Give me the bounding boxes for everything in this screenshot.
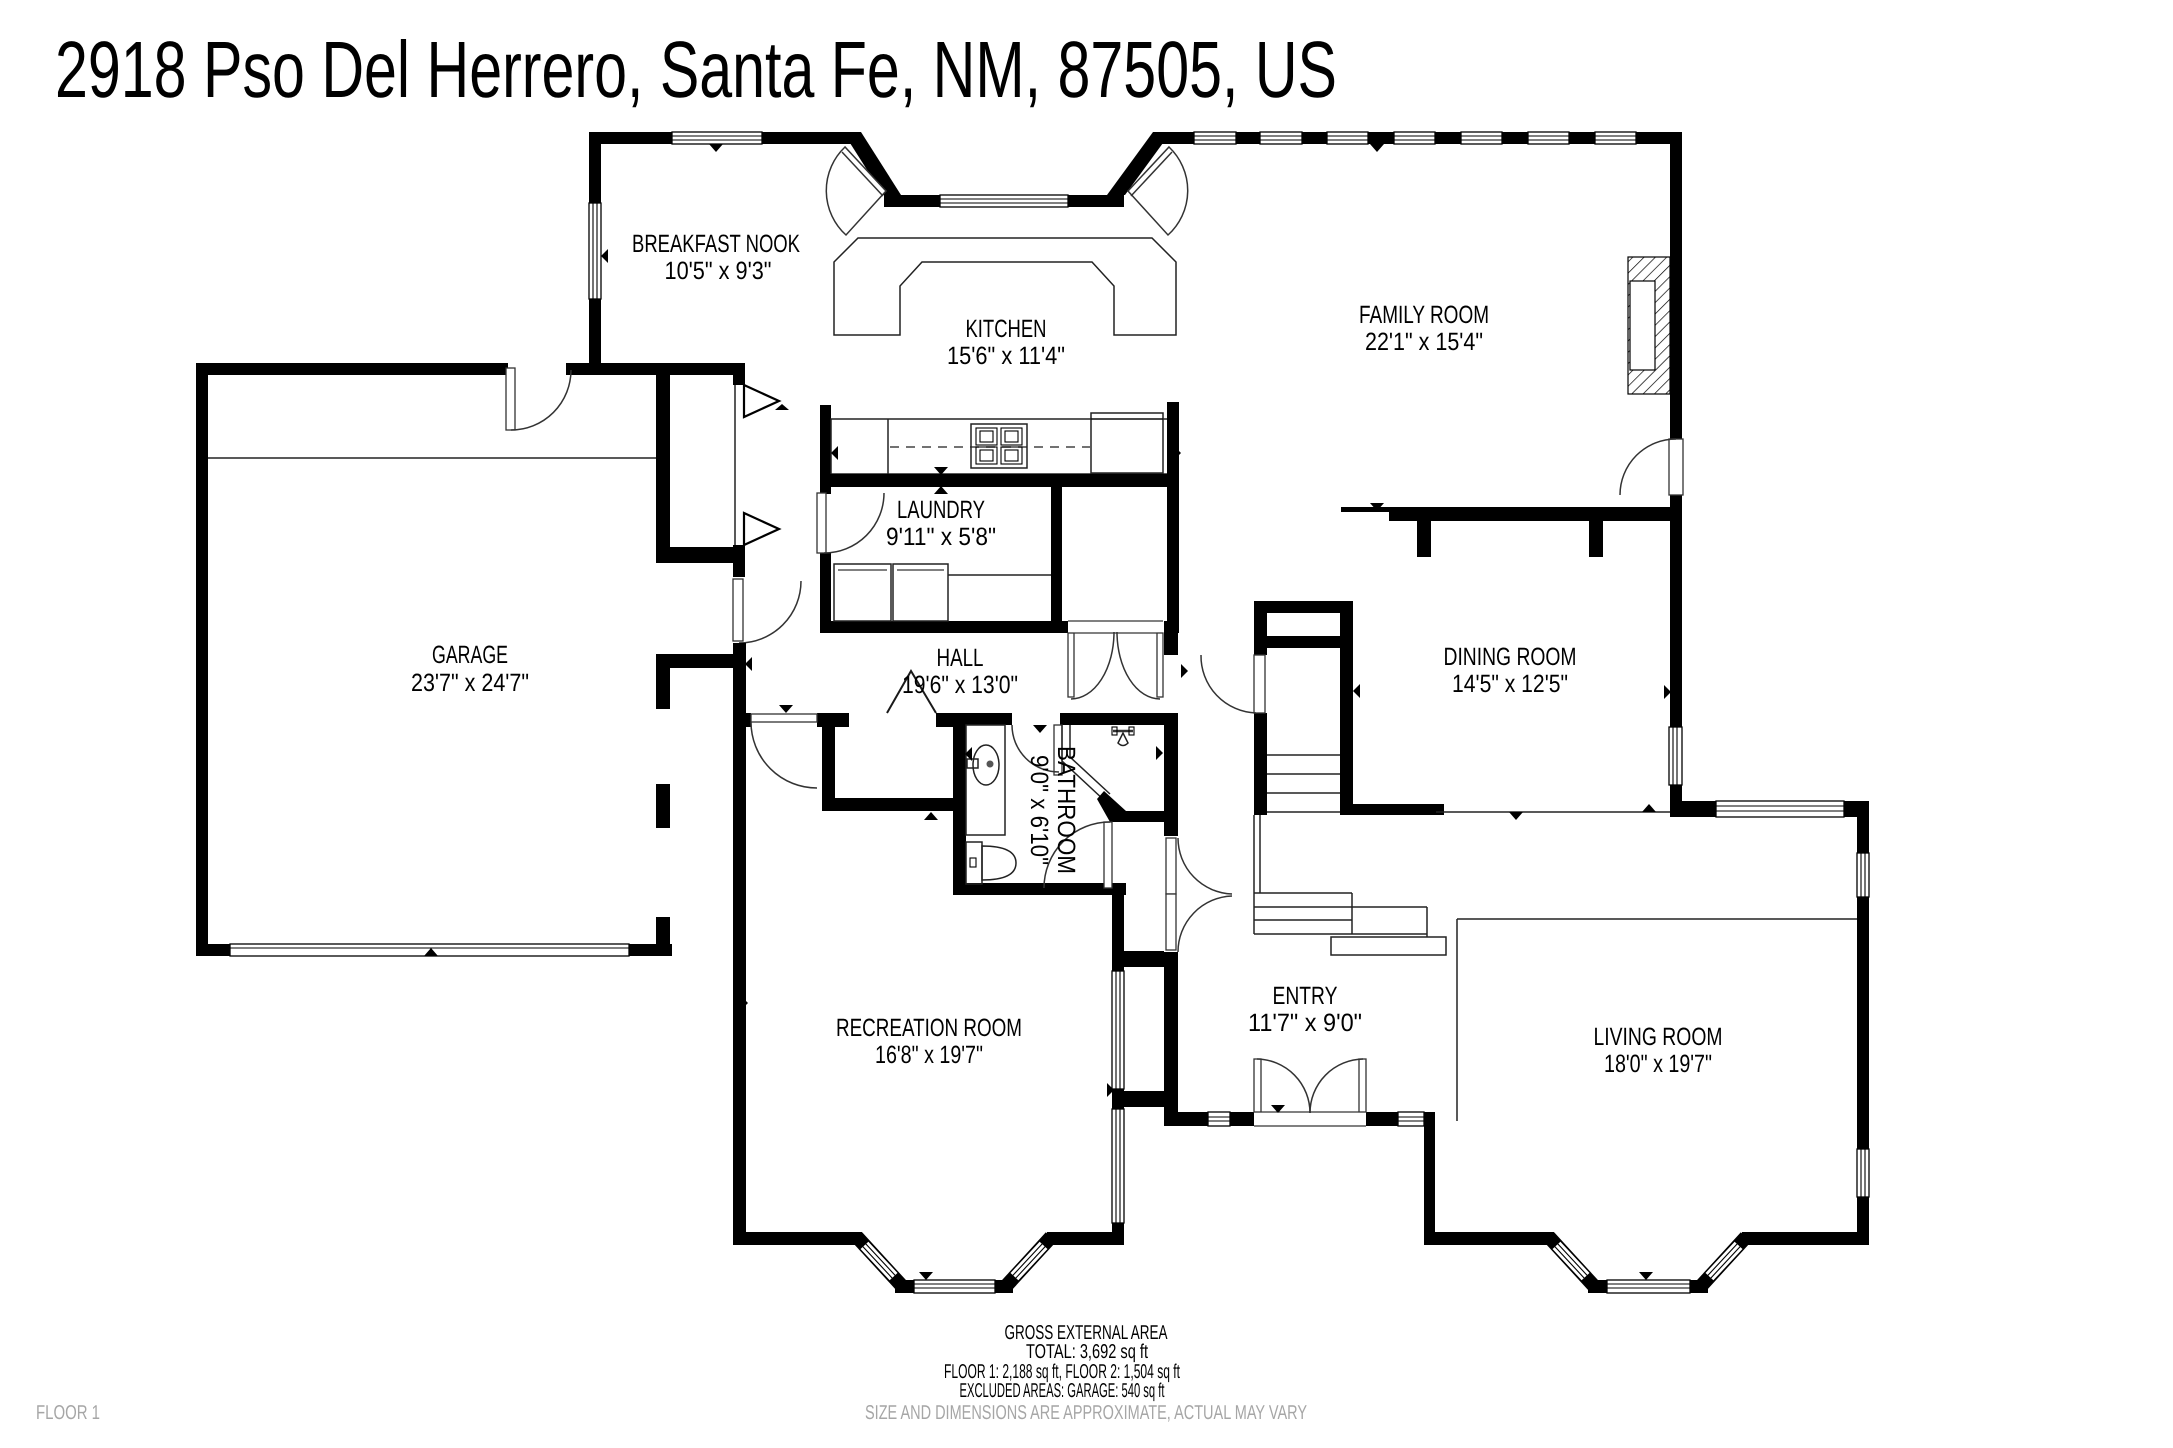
svg-text:19'6" x 13'0": 19'6" x 13'0": [902, 671, 1018, 699]
svg-text:HALL: HALL: [937, 644, 984, 672]
svg-text:9'11" x 5'8": 9'11" x 5'8": [886, 523, 996, 551]
svg-text:11'7" x 9'0": 11'7" x 9'0": [1248, 1009, 1362, 1037]
svg-text:RECREATION ROOM: RECREATION ROOM: [836, 1014, 1022, 1042]
svg-text:SIZE AND DIMENSIONS ARE APPROX: SIZE AND DIMENSIONS ARE APPROXIMATE, ACT…: [865, 1402, 1307, 1424]
svg-text:FLOOR 1: FLOOR 1: [36, 1402, 100, 1424]
svg-text:16'8" x 19'7": 16'8" x 19'7": [875, 1041, 983, 1069]
svg-text:BATHROOM: BATHROOM: [1052, 746, 1080, 874]
svg-text:14'5" x 12'5": 14'5" x 12'5": [1452, 670, 1568, 698]
svg-text:ENTRY: ENTRY: [1273, 982, 1338, 1010]
svg-text:2918 Pso Del Herrero, Santa Fe: 2918 Pso Del Herrero, Santa Fe, NM, 8750…: [55, 25, 1337, 114]
svg-text:GARAGE: GARAGE: [432, 641, 508, 669]
svg-text:EXCLUDED AREAS: GARAGE: 540 sq: EXCLUDED AREAS: GARAGE: 540 sq ft: [960, 1380, 1165, 1402]
svg-text:TOTAL: 3,692 sq ft: TOTAL: 3,692 sq ft: [1026, 1341, 1148, 1363]
svg-text:18'0" x 19'7": 18'0" x 19'7": [1604, 1050, 1712, 1078]
svg-text:LIVING ROOM: LIVING ROOM: [1594, 1023, 1723, 1051]
svg-text:15'6" x 11'4": 15'6" x 11'4": [947, 342, 1065, 370]
svg-text:FAMILY ROOM: FAMILY ROOM: [1359, 301, 1489, 329]
svg-text:DINING ROOM: DINING ROOM: [1444, 643, 1577, 671]
svg-text:22'1" x 15'4": 22'1" x 15'4": [1365, 328, 1483, 356]
svg-text:BREAKFAST NOOK: BREAKFAST NOOK: [632, 230, 800, 258]
svg-text:KITCHEN: KITCHEN: [966, 315, 1047, 343]
svg-text:LAUNDRY: LAUNDRY: [897, 496, 985, 524]
svg-text:10'5" x 9'3": 10'5" x 9'3": [665, 257, 772, 285]
svg-text:9'0" x 6'10": 9'0" x 6'10": [1025, 755, 1053, 865]
svg-text:23'7" x 24'7": 23'7" x 24'7": [411, 669, 529, 697]
